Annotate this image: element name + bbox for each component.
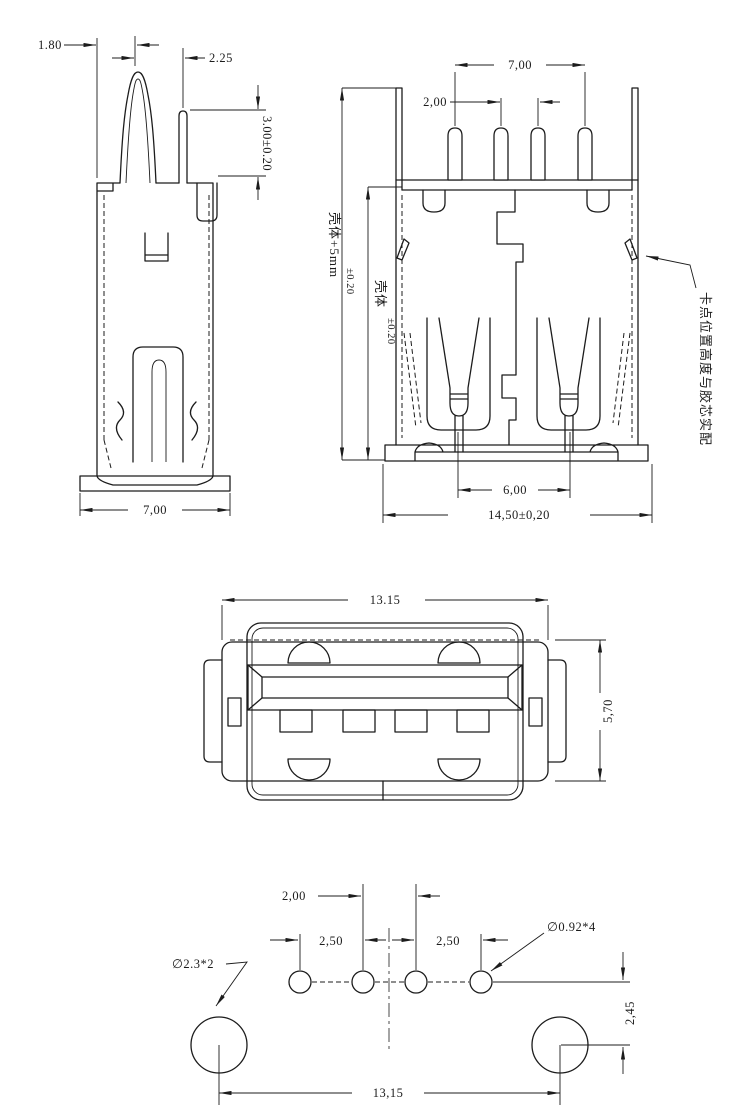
dim-pin-offset: 1.80 bbox=[38, 38, 62, 52]
dim-hole-offset: 2,45 bbox=[623, 1001, 637, 1025]
dim-base-width: 7,00 bbox=[143, 503, 167, 517]
dim-pin-gap: 2.25 bbox=[209, 51, 233, 65]
dim-contact-span: 6,00 bbox=[503, 483, 527, 497]
dim-pin-span: 7,00 bbox=[508, 58, 532, 72]
dim-pin-height: 3.00±0.20 bbox=[260, 116, 274, 171]
label-small-holes: ∅0.92*4 bbox=[547, 920, 596, 934]
dim-shell-plus: 壳体+5mm bbox=[327, 212, 342, 278]
dim-big-hole-span: 13,15 bbox=[373, 1086, 404, 1100]
latch-note: 卡点位置高度与胶芯实配 bbox=[698, 292, 713, 446]
side-view: 1.80 2.25 3.00±0.20 7,00 bbox=[38, 36, 274, 517]
usb-connector-drawing-sheet: 1.80 2.25 3.00±0.20 7,00 bbox=[0, 0, 740, 1108]
dim-shell: 壳体 bbox=[373, 280, 388, 308]
dim-face-width: 13.15 bbox=[370, 593, 401, 607]
dim-face-height: 5,70 bbox=[601, 699, 615, 723]
dim-left-pitch: 2,50 bbox=[319, 934, 343, 948]
label-big-holes: ∅2.3*2 bbox=[172, 957, 214, 971]
rear-section-view: 7,00 2,00 壳体+5mm ±0.20 壳体 ±0.20 6,00 14,… bbox=[327, 58, 713, 523]
dim-right-pitch: 2,50 bbox=[436, 934, 460, 948]
pcb-footprint-view: 2,00 2,50 2,50 ∅0.92*4 ∅2.3*2 2,45 13,15 bbox=[172, 884, 637, 1105]
dim-shell-tol: ±0.20 bbox=[385, 318, 396, 345]
dim-shell-plus-tol: ±0.20 bbox=[344, 268, 355, 295]
dim-center-pitch: 2,00 bbox=[282, 889, 306, 903]
drawing-canvas: 1.80 2.25 3.00±0.20 7,00 bbox=[0, 0, 740, 1108]
front-face-view: 13.15 5,70 bbox=[204, 593, 615, 800]
dim-body-width: 14,50±0,20 bbox=[488, 508, 550, 522]
dim-pin-pitch: 2,00 bbox=[423, 95, 447, 109]
